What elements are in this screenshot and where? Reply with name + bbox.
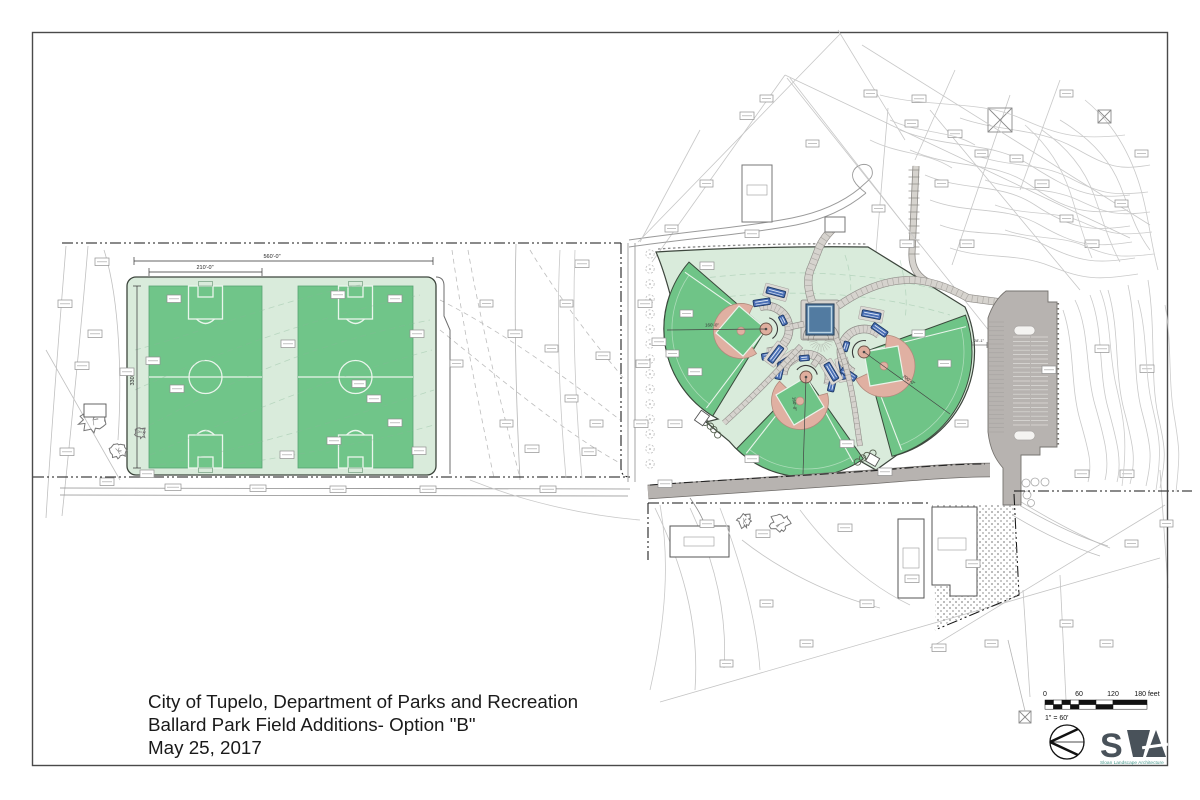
svg-text:28'-1": 28'-1" <box>974 338 985 343</box>
svg-text:60: 60 <box>1075 691 1083 698</box>
svg-text:May 25, 2017: May 25, 2017 <box>148 737 262 758</box>
svg-text:0: 0 <box>1043 691 1047 698</box>
svg-text:Ballard Park Field Additions-: Ballard Park Field Additions- Option "B" <box>148 714 476 735</box>
svg-text:160'-0": 160'-0" <box>705 323 719 328</box>
svg-text:180 feet: 180 feet <box>1134 691 1159 698</box>
svg-text:S: S <box>1100 727 1123 765</box>
svg-text:560'-0": 560'-0" <box>263 254 280 260</box>
svg-text:City of Tupelo, Department of: City of Tupelo, Department of Parks and … <box>148 691 578 712</box>
svg-text:120: 120 <box>1107 691 1119 698</box>
svg-text:Sloan Landscape Architecture: Sloan Landscape Architecture <box>1100 760 1164 766</box>
svg-text:210'-0": 210'-0" <box>196 265 213 271</box>
svg-text:1" = 60': 1" = 60' <box>1045 715 1068 722</box>
